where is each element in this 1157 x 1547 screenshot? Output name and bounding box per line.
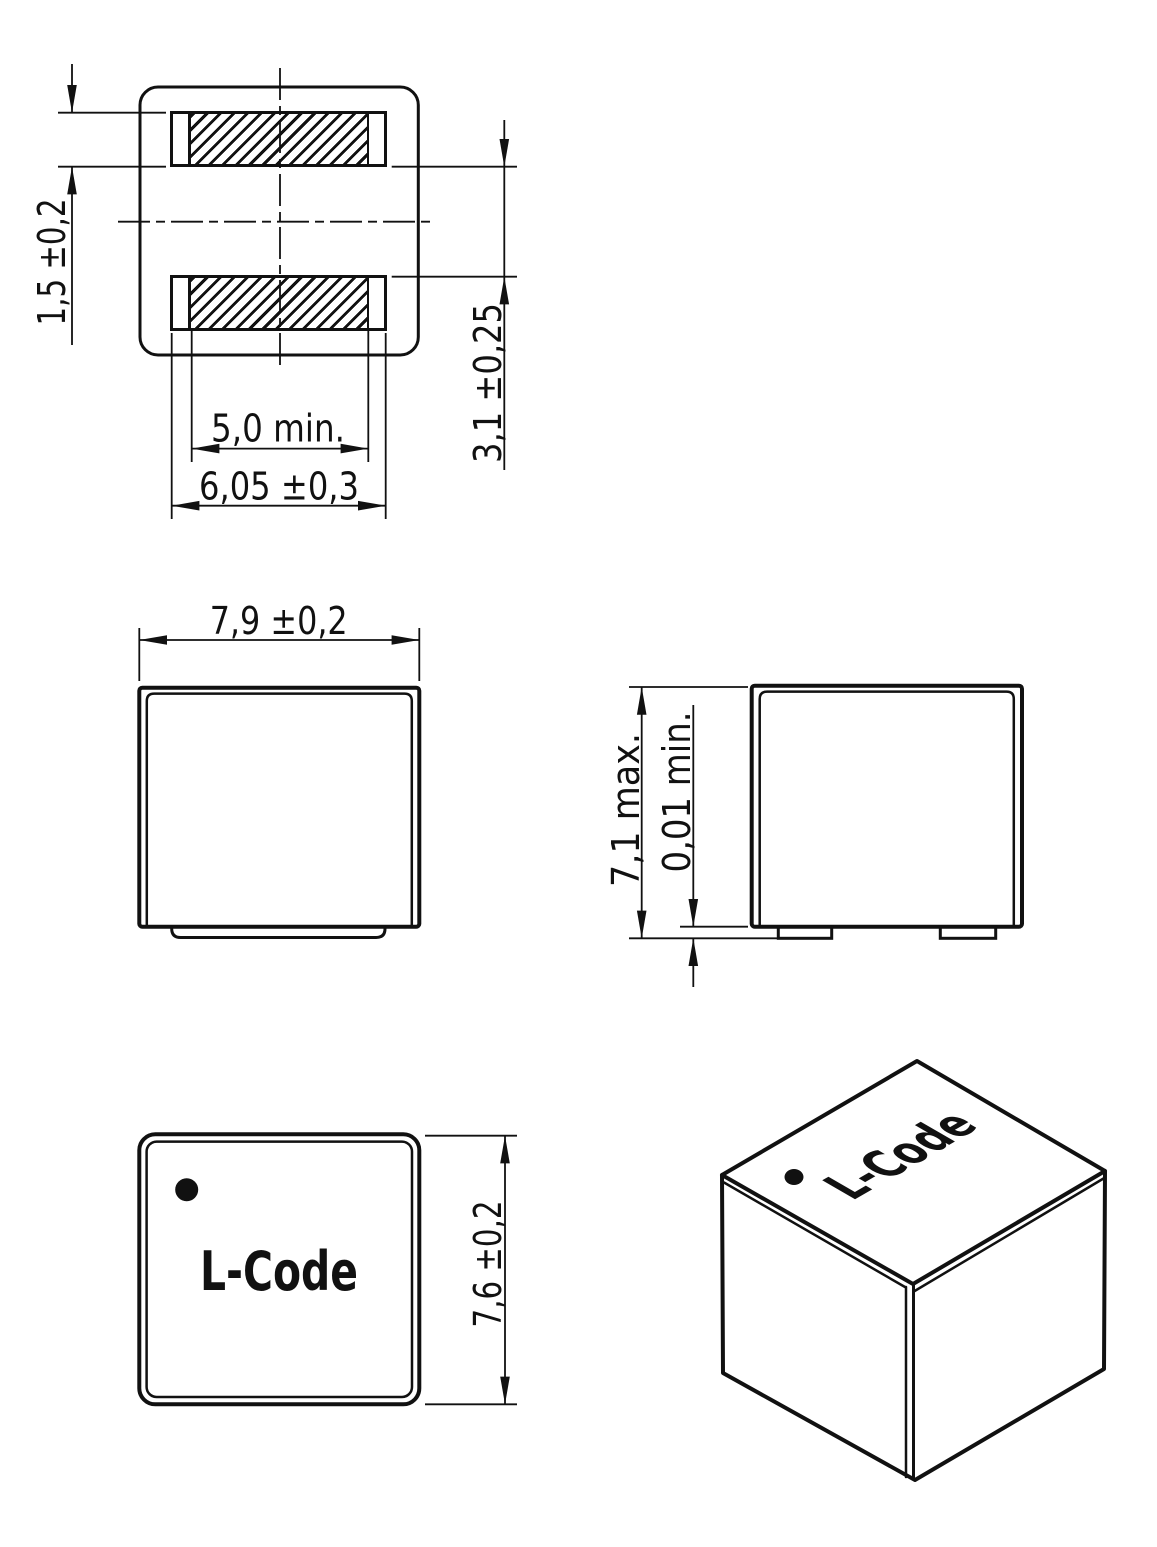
arrowhead-right bbox=[392, 635, 420, 645]
arrowhead-left bbox=[172, 501, 200, 511]
arrowhead-up bbox=[500, 1136, 510, 1164]
arrowhead-up bbox=[689, 938, 699, 966]
right-face-chamfer-line bbox=[914, 1179, 1104, 1292]
l-code-marking: L-Code bbox=[200, 1240, 358, 1303]
arrowhead-up bbox=[67, 167, 77, 195]
component-body-outline bbox=[139, 688, 419, 927]
front-view: 7,9 ±0,2 bbox=[139, 599, 419, 938]
arrowhead-down bbox=[500, 1377, 510, 1405]
side-view: 7,1 max. 0,01 min. bbox=[604, 686, 1022, 987]
l-code-marking-iso: L-Code bbox=[811, 1103, 991, 1207]
technical-drawing-page: 1,5 ±0,2 3,1 ±0,25 5,0 min. 6,05 ±0,3 bbox=[0, 0, 1157, 1547]
dim-hatched-width-label: 5,0 min. bbox=[211, 407, 345, 451]
dim-pad-height-label: 1,5 ±0,2 bbox=[30, 199, 74, 326]
polarity-dot bbox=[175, 1178, 198, 1201]
body-chamfer-line bbox=[760, 692, 1014, 927]
arrowhead-up bbox=[637, 687, 647, 715]
body-chamfer-line bbox=[147, 694, 412, 927]
dim-standoff-label: 0,01 min. bbox=[655, 712, 699, 873]
land-pattern-view: 1,5 ±0,2 3,1 ±0,25 5,0 min. 6,05 ±0,3 bbox=[30, 64, 517, 519]
top-face-front-edges bbox=[722, 1171, 1105, 1284]
dim-body-height-label: 7,1 max. bbox=[604, 733, 648, 887]
arrowhead-down bbox=[689, 899, 699, 927]
arrowhead-down bbox=[637, 911, 647, 939]
arrowhead-right bbox=[358, 501, 386, 511]
arrowhead-left bbox=[139, 635, 167, 645]
top-view: L-Code 7,6 ±0,2 bbox=[139, 1134, 517, 1404]
dim-pad-gap-label: 3,1 ±0,25 bbox=[466, 303, 510, 463]
arrowhead-up bbox=[500, 277, 510, 305]
arrowhead-down bbox=[500, 139, 510, 167]
isometric-view: L-Code bbox=[722, 1061, 1105, 1480]
dim-pad-width-label: 6,05 ±0,3 bbox=[199, 465, 359, 509]
drawing-linework: 1,5 ±0,2 3,1 ±0,25 5,0 min. 6,05 ±0,3 bbox=[0, 0, 1157, 1547]
dim-body-depth-label: 7,6 ±0,2 bbox=[466, 1201, 510, 1328]
dim-body-width-label: 7,9 ±0,2 bbox=[210, 599, 348, 643]
polarity-dot bbox=[785, 1169, 804, 1185]
component-body-outline bbox=[752, 686, 1022, 927]
arrowhead-down bbox=[67, 85, 77, 113]
